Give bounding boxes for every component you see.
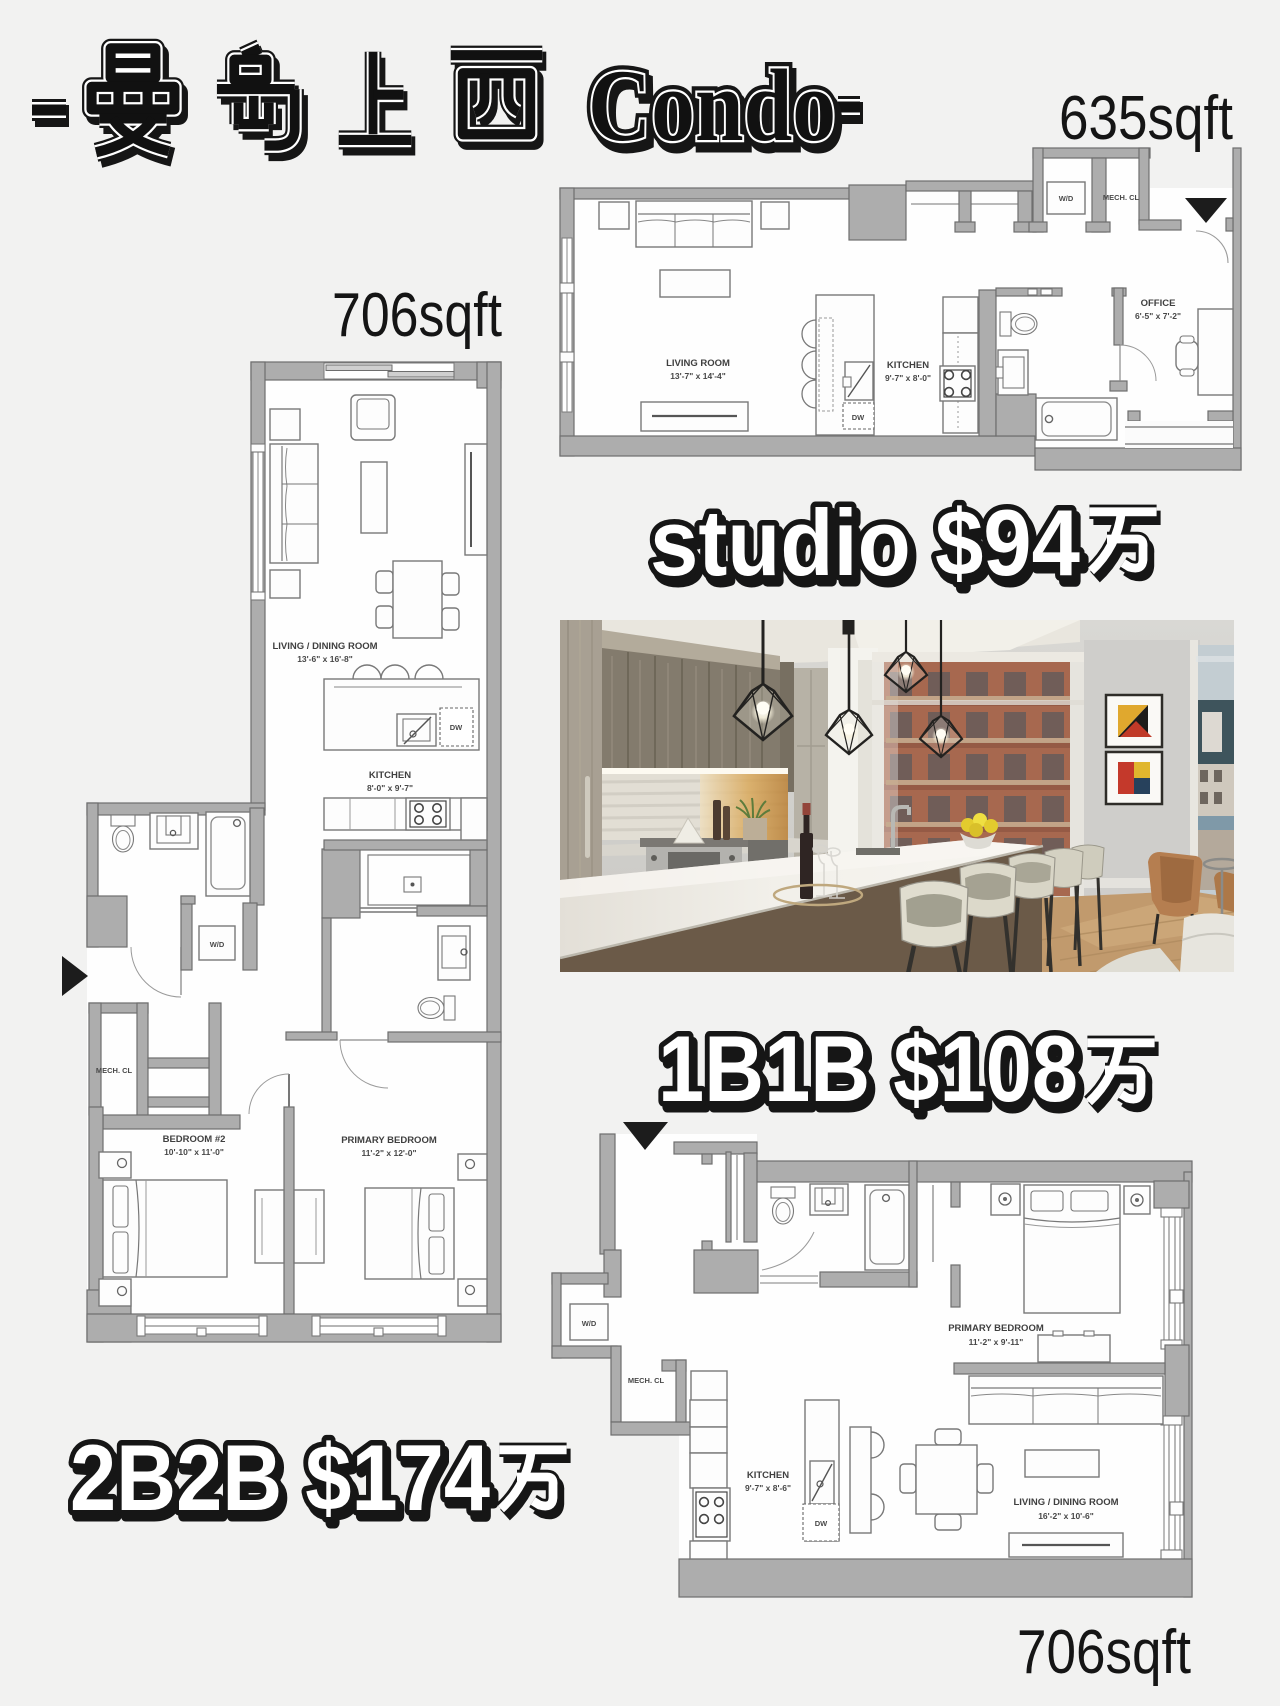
svg-text:706sqft: 706sqft (1017, 1618, 1191, 1687)
svg-text:W/D: W/D (210, 940, 225, 949)
svg-text:11'-2" x 9'-11": 11'-2" x 9'-11" (969, 1337, 1024, 1347)
svg-text:10'-10" x 11'-0": 10'-10" x 11'-0" (164, 1147, 224, 1157)
svg-text:LIVING ROOM: LIVING ROOM (666, 358, 730, 369)
svg-text:1B1B $108: 1B1B $108 (658, 1016, 1078, 1121)
svg-text:DW: DW (450, 723, 463, 732)
svg-text:2B2B $174: 2B2B $174 (70, 1425, 490, 1530)
svg-text:9'-7" x 8'-0": 9'-7" x 8'-0" (885, 373, 931, 383)
svg-text:KITCHEN: KITCHEN (369, 770, 411, 781)
svg-text:706sqft: 706sqft (332, 281, 502, 350)
svg-text:OFFICE: OFFICE (1141, 298, 1176, 309)
svg-text:studio $94: studio $94 (650, 490, 1080, 595)
svg-text:9'-7" x 8'-6": 9'-7" x 8'-6" (745, 1483, 791, 1493)
svg-text:11'-2" x 12'-0": 11'-2" x 12'-0" (361, 1148, 416, 1158)
svg-text:8'-0" x 9'-7": 8'-0" x 9'-7" (367, 783, 413, 793)
svg-text:Condo: Condo (588, 49, 836, 163)
svg-text:635sqft: 635sqft (1059, 84, 1233, 153)
svg-text:13'-7" x 14'-4": 13'-7" x 14'-4" (670, 371, 726, 381)
svg-text:W/D: W/D (1059, 194, 1074, 203)
svg-text:KITCHEN: KITCHEN (887, 360, 929, 371)
svg-text:PRIMARY BEDROOM: PRIMARY BEDROOM (341, 1135, 437, 1146)
svg-text:KITCHEN: KITCHEN (747, 1470, 789, 1481)
svg-text:BEDROOM #2: BEDROOM #2 (163, 1134, 226, 1145)
svg-text:LIVING / DINING ROOM: LIVING / DINING ROOM (272, 641, 377, 652)
svg-text:PRIMARY BEDROOM: PRIMARY BEDROOM (948, 1323, 1044, 1334)
svg-text:MECH. CL: MECH. CL (628, 1376, 665, 1385)
svg-text:13'-6" x 16'-8": 13'-6" x 16'-8" (297, 654, 353, 664)
svg-text:W/D: W/D (582, 1319, 597, 1328)
svg-text:DW: DW (815, 1519, 828, 1528)
svg-text:LIVING / DINING ROOM: LIVING / DINING ROOM (1013, 1497, 1118, 1508)
svg-text:MECH. CL: MECH. CL (96, 1066, 133, 1075)
svg-text:6'-5" x 7'-2": 6'-5" x 7'-2" (1135, 311, 1181, 321)
svg-text:16'-2" x 10'-6": 16'-2" x 10'-6" (1038, 1511, 1094, 1521)
svg-text:MECH. CL: MECH. CL (1103, 193, 1140, 202)
svg-text:DW: DW (852, 413, 865, 422)
